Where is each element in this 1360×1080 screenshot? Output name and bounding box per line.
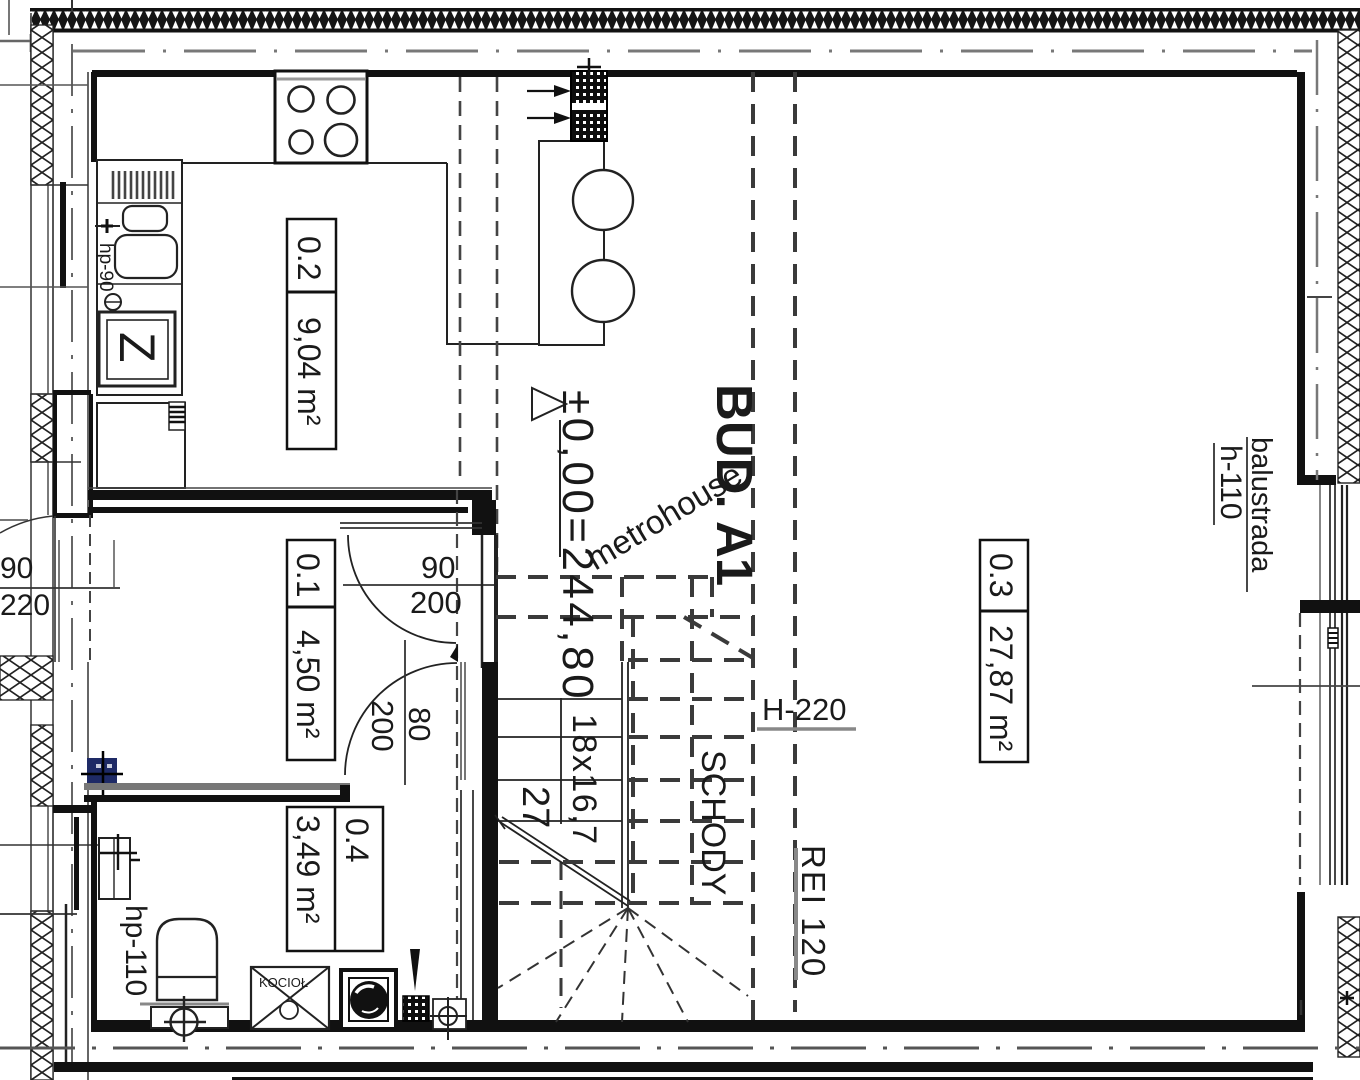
svg-text:Z: Z <box>109 332 165 363</box>
svg-text:80: 80 <box>402 707 437 741</box>
svg-text:18x16,7: 18x16,7 <box>565 714 603 846</box>
svg-text:9,04 m²: 9,04 m² <box>291 317 327 426</box>
svg-text:SCHODY: SCHODY <box>694 750 732 895</box>
svg-text:27: 27 <box>514 786 556 828</box>
svg-text:0.1: 0.1 <box>290 553 326 597</box>
svg-text:0.2: 0.2 <box>291 236 327 280</box>
svg-text:h-110: h-110 <box>1214 445 1247 520</box>
svg-text:3,49 m²: 3,49 m² <box>290 815 326 924</box>
svg-text:balustrada: balustrada <box>1245 437 1277 573</box>
svg-text:KOCIOŁ: KOCIOŁ <box>259 975 308 990</box>
svg-text:4,50 m²: 4,50 m² <box>290 630 326 739</box>
svg-text:200: 200 <box>410 585 462 620</box>
svg-text:200: 200 <box>365 700 400 752</box>
svg-text:hp-90: hp-90 <box>95 243 116 292</box>
svg-text:90: 90 <box>0 552 33 585</box>
svg-text:hp-110: hp-110 <box>119 905 152 996</box>
svg-text:0.4: 0.4 <box>339 818 375 862</box>
svg-text:REI 120: REI 120 <box>795 845 832 978</box>
svg-text:27,87 m²: 27,87 m² <box>983 625 1019 752</box>
svg-text:H-220: H-220 <box>762 692 846 727</box>
svg-text:220: 220 <box>0 589 50 622</box>
svg-text:0.3: 0.3 <box>983 553 1019 597</box>
svg-text:90: 90 <box>421 550 455 585</box>
